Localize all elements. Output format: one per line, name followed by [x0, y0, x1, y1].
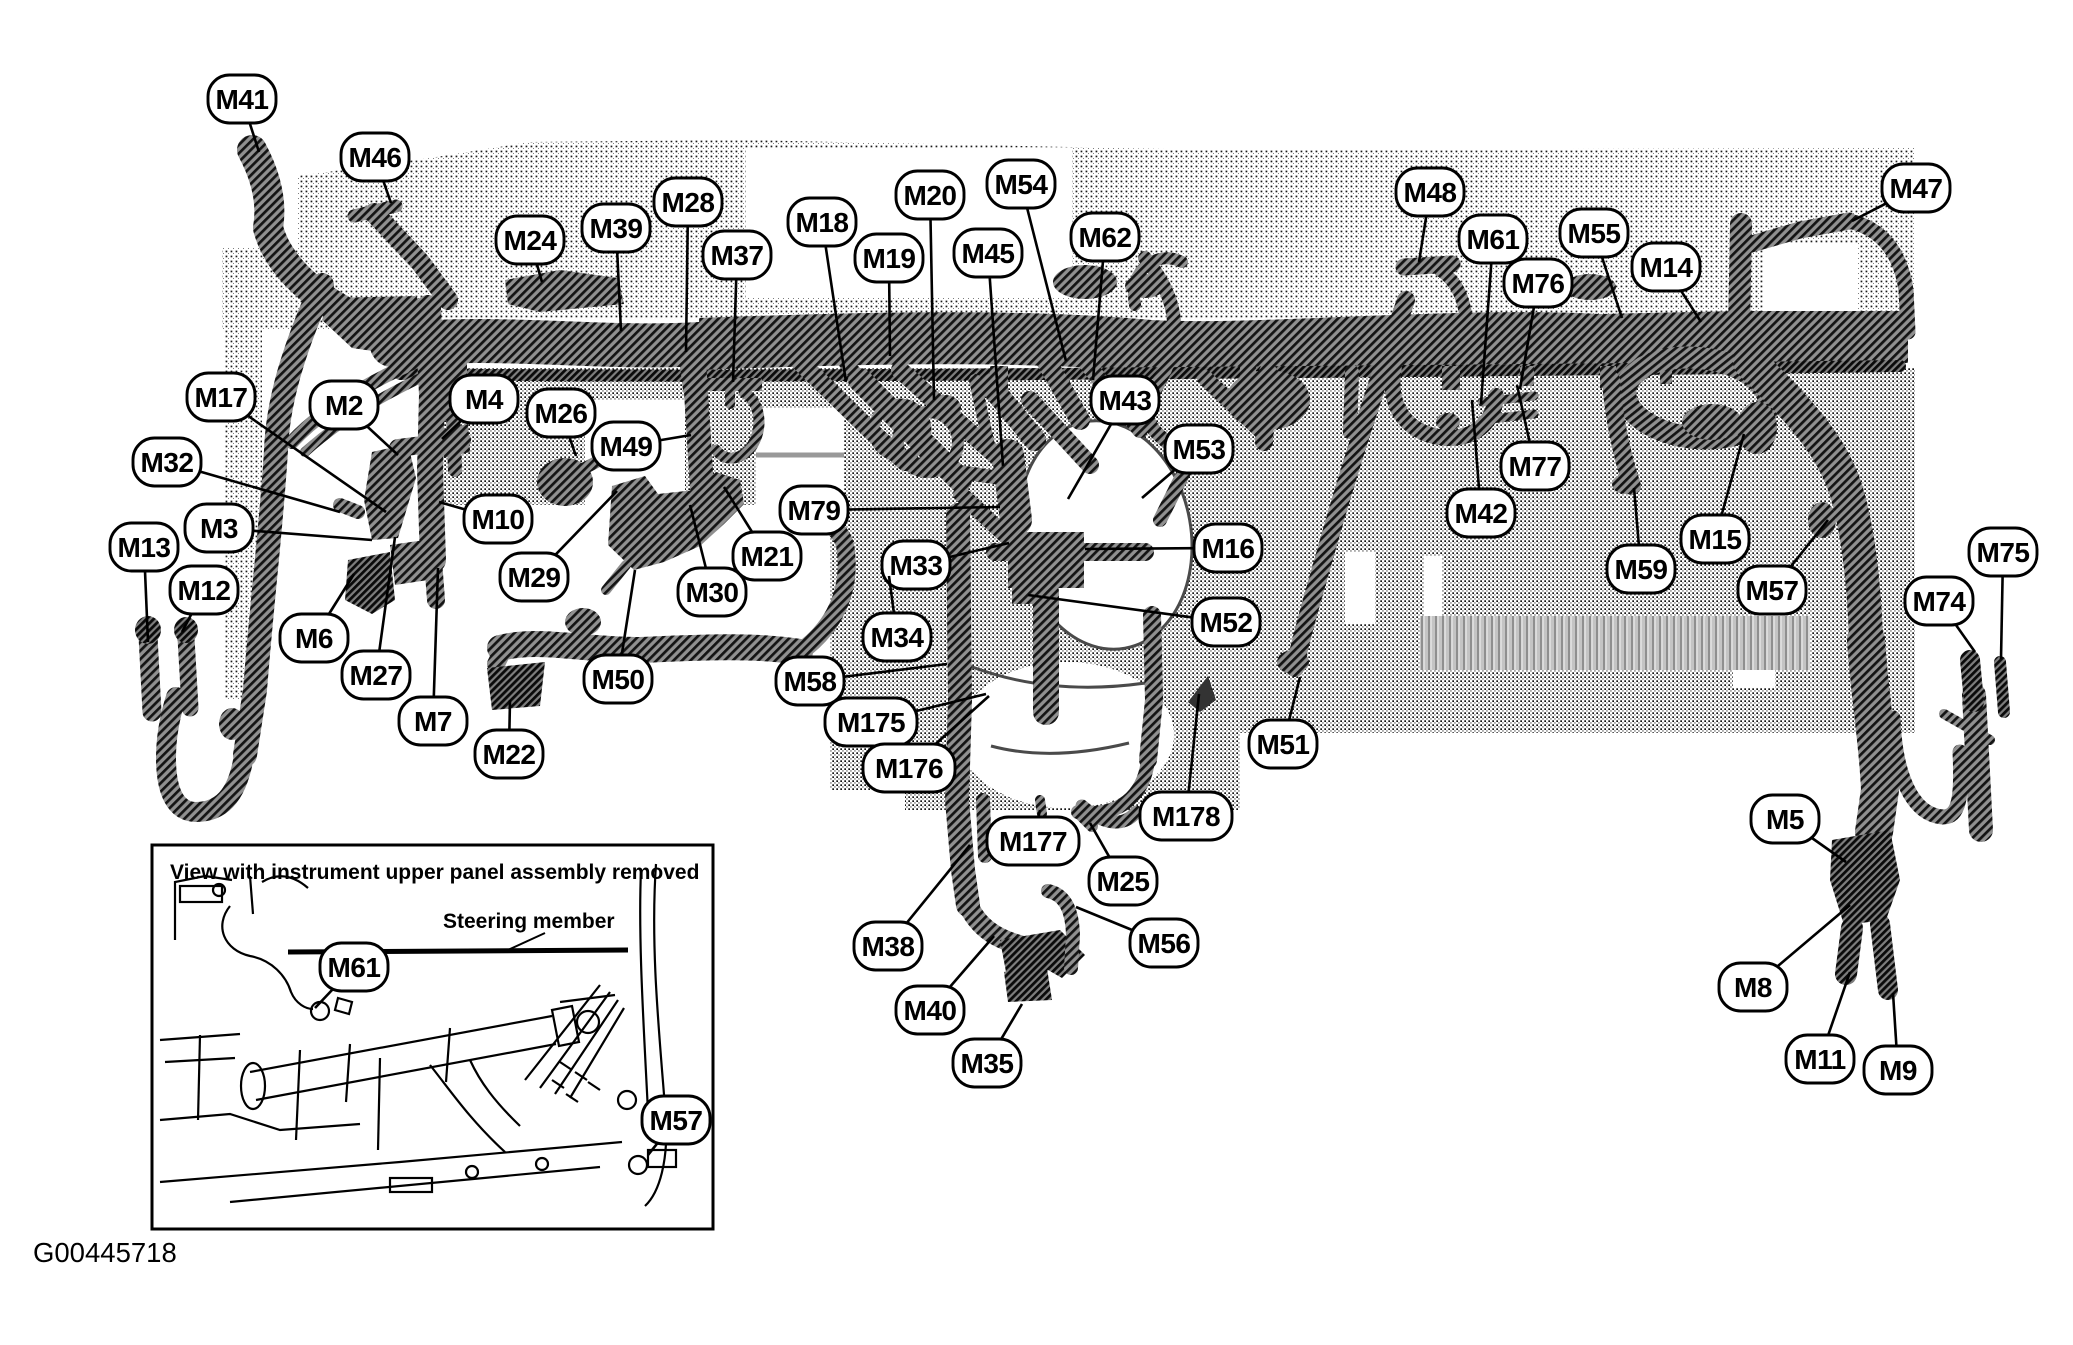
svg-text:M11: M11: [1794, 1044, 1845, 1075]
svg-text:M18: M18: [796, 207, 849, 238]
svg-text:M41: M41: [216, 84, 269, 115]
svg-text:M51: M51: [1257, 729, 1310, 760]
svg-text:M3: M3: [200, 513, 238, 544]
svg-text:M38: M38: [862, 931, 915, 962]
svg-text:M10: M10: [472, 504, 525, 535]
svg-text:M21: M21: [741, 541, 794, 572]
svg-text:M5: M5: [1766, 804, 1804, 835]
svg-text:M58: M58: [784, 666, 837, 697]
svg-text:M35: M35: [961, 1048, 1014, 1079]
svg-text:M49: M49: [600, 431, 653, 462]
svg-text:M61: M61: [328, 952, 381, 983]
svg-text:M8: M8: [1734, 972, 1772, 1003]
svg-text:M178: M178: [1152, 801, 1220, 832]
svg-text:M177: M177: [999, 826, 1067, 857]
svg-text:M13: M13: [118, 532, 171, 563]
svg-text:M26: M26: [535, 398, 588, 429]
svg-text:M34: M34: [871, 622, 925, 653]
svg-text:M59: M59: [1615, 554, 1668, 585]
svg-text:M4: M4: [465, 384, 504, 415]
svg-text:M39: M39: [590, 213, 643, 244]
svg-text:M33: M33: [890, 550, 943, 581]
svg-text:M9: M9: [1879, 1055, 1917, 1086]
svg-text:M37: M37: [711, 240, 764, 271]
svg-text:M52: M52: [1200, 607, 1253, 638]
svg-text:M6: M6: [295, 623, 333, 654]
svg-text:M56: M56: [1138, 928, 1191, 959]
svg-text:M61: M61: [1467, 224, 1520, 255]
svg-text:M48: M48: [1404, 177, 1457, 208]
svg-text:M27: M27: [350, 660, 403, 691]
svg-text:M47: M47: [1890, 173, 1943, 204]
svg-text:M12: M12: [178, 575, 231, 606]
svg-text:M46: M46: [349, 142, 402, 173]
svg-text:M175: M175: [837, 707, 905, 738]
svg-text:M40: M40: [904, 995, 957, 1026]
svg-text:M77: M77: [1509, 451, 1562, 482]
svg-text:M57: M57: [650, 1105, 703, 1136]
svg-text:M176: M176: [875, 753, 943, 784]
svg-text:M16: M16: [1202, 533, 1255, 564]
svg-text:M79: M79: [788, 495, 841, 526]
svg-text:M62: M62: [1079, 222, 1132, 253]
svg-text:G00445718: G00445718: [33, 1237, 177, 1268]
svg-text:M14: M14: [1640, 252, 1694, 283]
svg-text:M32: M32: [141, 447, 194, 478]
svg-text:M53: M53: [1173, 434, 1226, 465]
svg-text:M2: M2: [325, 390, 363, 421]
svg-text:M54: M54: [995, 169, 1049, 200]
svg-text:M17: M17: [195, 382, 248, 413]
svg-text:M15: M15: [1689, 524, 1742, 555]
svg-text:M45: M45: [962, 238, 1015, 269]
svg-text:M43: M43: [1099, 385, 1152, 416]
svg-text:M7: M7: [414, 706, 452, 737]
svg-text:M42: M42: [1455, 498, 1508, 529]
svg-text:M75: M75: [1977, 537, 2030, 568]
svg-text:M76: M76: [1512, 268, 1565, 299]
svg-text:M74: M74: [1913, 586, 1967, 617]
svg-text:M30: M30: [686, 577, 739, 608]
svg-text:M22: M22: [483, 739, 536, 770]
svg-text:M55: M55: [1568, 218, 1621, 249]
svg-text:M25: M25: [1097, 866, 1150, 897]
svg-text:M50: M50: [592, 664, 645, 695]
svg-text:M28: M28: [662, 187, 715, 218]
svg-text:M57: M57: [1746, 575, 1799, 606]
svg-text:M29: M29: [508, 562, 561, 593]
svg-text:M20: M20: [904, 180, 957, 211]
svg-text:M24: M24: [504, 225, 558, 256]
svg-text:M19: M19: [863, 243, 916, 274]
svg-text:Steering member: Steering member: [443, 910, 615, 933]
